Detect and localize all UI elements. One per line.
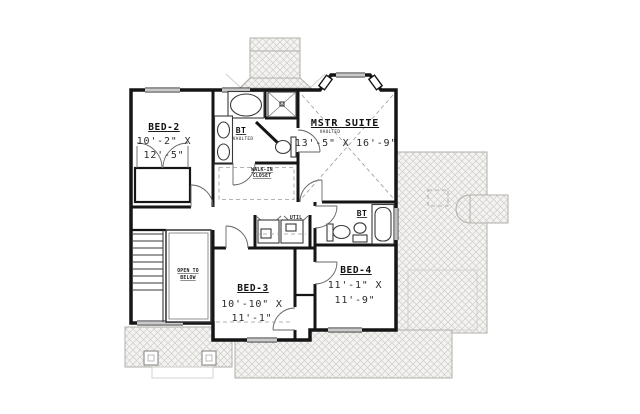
window (328, 328, 362, 333)
bed4-dim2: 11'-9" (335, 295, 376, 306)
right-roof-hatch (397, 152, 508, 333)
bay-window (336, 73, 365, 78)
bed2-dim1: 10'-2" X (137, 136, 192, 147)
double-vanity (215, 116, 233, 163)
master-suite-label: MSTR SUITE (311, 118, 379, 129)
bed2-label: BED-2 (148, 122, 180, 133)
bed4-dim1: 11'-1" X (328, 280, 383, 291)
master-bath-label: BT (236, 126, 246, 135)
master-bath-sub: VAULTED (233, 136, 254, 142)
garden-tub (228, 92, 264, 119)
hall-bath-label: BT (357, 209, 367, 218)
bed3-dim2: 11'-1" (232, 313, 273, 324)
master-suite-sub: VAULTED (320, 129, 341, 135)
util-label: UTIL (290, 215, 302, 221)
walkin-closet-label1: WALK-IN (251, 167, 273, 173)
bed4-label: BED-4 (340, 265, 372, 276)
bed2-dim2: 12'-5" (144, 150, 185, 161)
porch-post (202, 351, 216, 365)
walkin-closet-label2: CLOSET (253, 173, 272, 179)
window (145, 88, 180, 93)
master-suite-dim: 13'-5" X 16'-9" (295, 138, 397, 149)
open-to-below-label1: OPEN TO (177, 268, 199, 274)
open-to-below-label2: BELOW (180, 275, 195, 281)
bathtub (372, 205, 394, 245)
floor-plan-sheet: BED-2 10'-2" X 12'-5" BT VAULTED MSTR SU… (0, 0, 640, 414)
chimney-hatch (226, 38, 325, 88)
window (247, 338, 277, 343)
floor-plan-drawing: BED-2 10'-2" X 12'-5" BT VAULTED MSTR SU… (0, 0, 640, 414)
porch-post (144, 351, 158, 365)
bed3-label: BED-3 (237, 283, 269, 294)
bed3-dim1: 10'-10" X (221, 299, 282, 310)
